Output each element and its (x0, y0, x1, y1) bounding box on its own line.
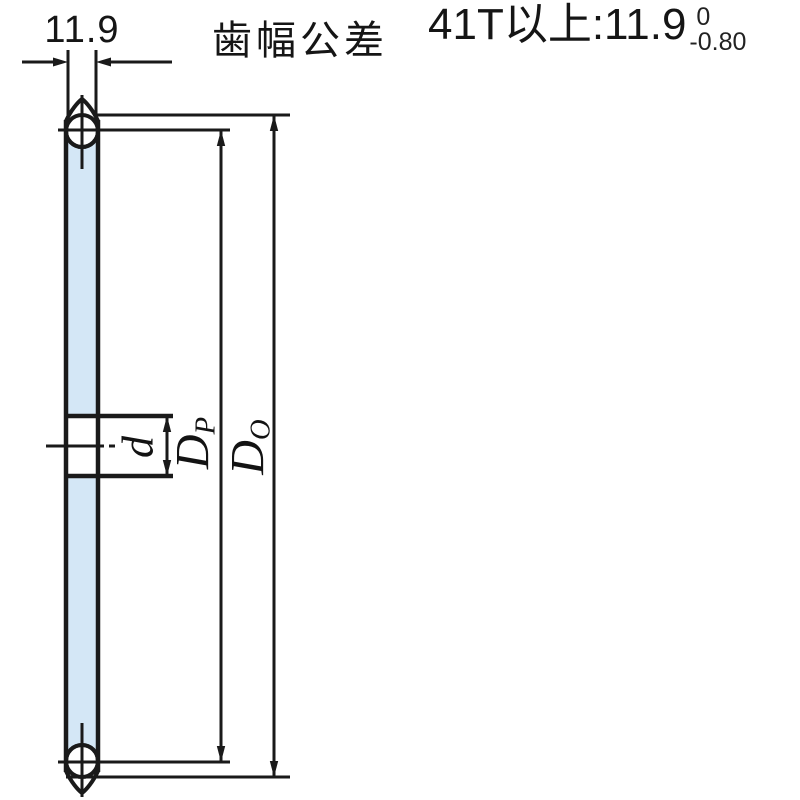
pitch-arrow-bottom (217, 746, 225, 762)
tolerance-lower: -0.80 (689, 30, 746, 55)
diagram-title: 歯幅公差 (212, 8, 388, 66)
pitch-diameter-symbol: D (166, 434, 219, 469)
outer-arrow-top (270, 115, 278, 131)
tolerance-spec: 41T以上:11.9 0 -0.80 (428, 2, 746, 55)
outer-diameter-subscript: O (245, 419, 277, 440)
bore-diameter-symbol: d (114, 436, 163, 458)
width-arrow-left (53, 58, 68, 67)
tooth-width-value: 11.9 (36, 9, 128, 52)
outer-diameter-symbol: D (221, 440, 274, 475)
pitch-diameter-subscript: P (190, 417, 222, 435)
sprocket-cross-section-drawing (0, 0, 800, 800)
outer-arrow-bottom (270, 761, 278, 777)
bore-diameter-label: d (113, 436, 164, 458)
tolerance-spec-text: 41T以上:11.9 (428, 2, 686, 48)
pitch-diameter-label: DP (165, 417, 222, 469)
tolerance-upper: 0 (689, 5, 746, 30)
tolerance-stack: 0 -0.80 (689, 5, 746, 55)
dim-tooth-width (22, 50, 172, 118)
width-arrow-right (96, 58, 111, 67)
outer-diameter-label: DO (220, 419, 277, 474)
sprocket-dimension-diagram: 11.9 歯幅公差 41T以上:11.9 0 -0.80 d DP DO (0, 0, 800, 800)
pitch-arrow-top (217, 130, 225, 146)
